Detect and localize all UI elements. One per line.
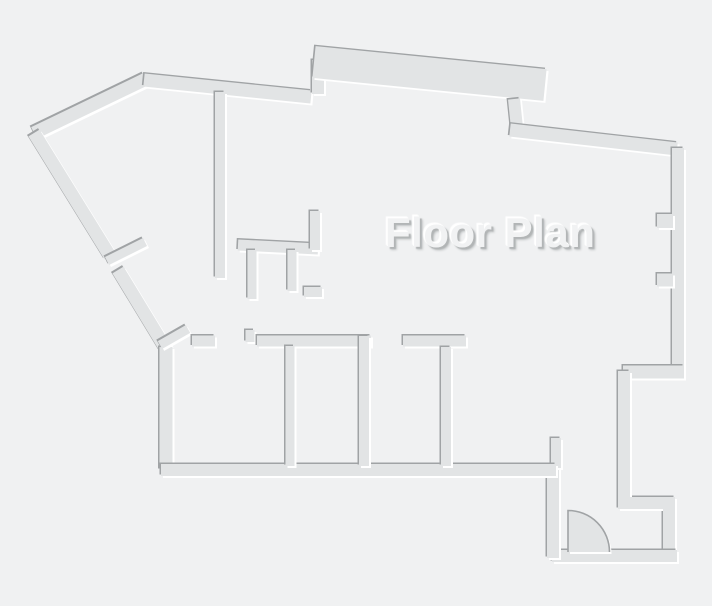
floorplan-title: Floor Plan — [385, 211, 595, 255]
floorplan-svg — [0, 0, 712, 606]
wall-outer-top — [144, 80, 311, 97]
wall-interior-horiz — [238, 245, 318, 249]
wall-outer-left-lower — [118, 270, 166, 349]
wall-outer-diag-topleft — [34, 79, 146, 133]
wall-outer-left-upper — [34, 133, 110, 256]
floorplan-canvas: Floor Plan — [0, 0, 712, 606]
